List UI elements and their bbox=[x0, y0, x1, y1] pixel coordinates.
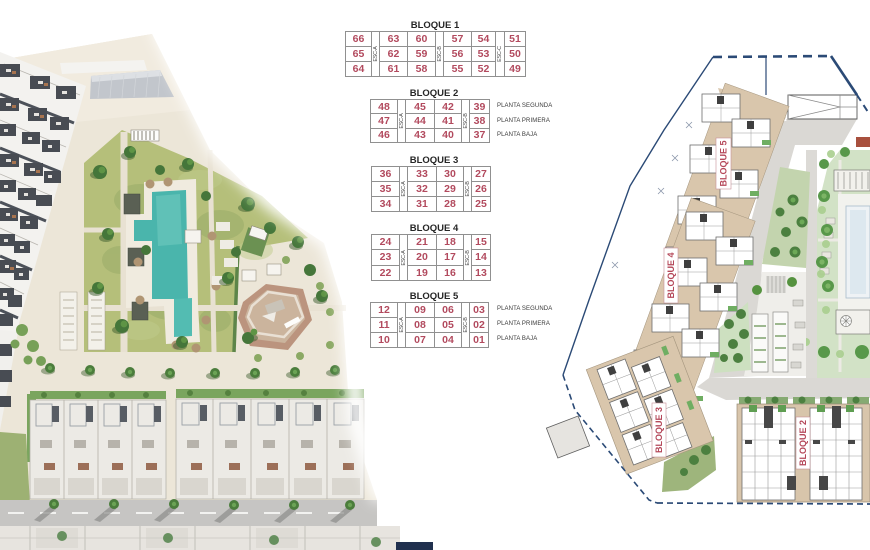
svg-text:BLOQUE 5: BLOQUE 5 bbox=[719, 140, 729, 186]
svg-text:BLOQUE 2: BLOQUE 2 bbox=[798, 420, 808, 466]
svg-text:BLOQUE 3: BLOQUE 3 bbox=[654, 407, 664, 453]
svg-text:BLOQUE 4: BLOQUE 4 bbox=[666, 252, 676, 298]
